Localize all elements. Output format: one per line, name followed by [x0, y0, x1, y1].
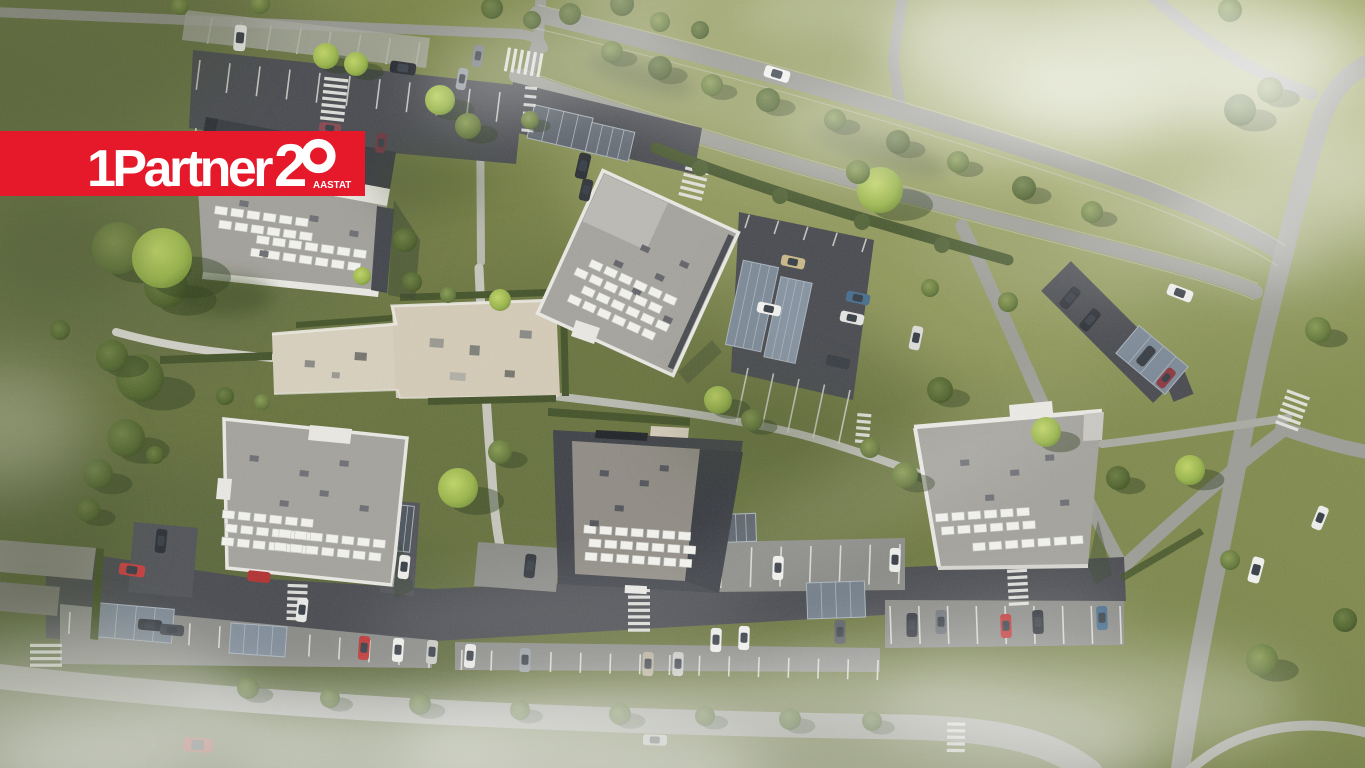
- svg-text:AASTAT: AASTAT: [313, 180, 351, 191]
- svg-text:2: 2: [274, 132, 307, 199]
- svg-text:1Partner: 1Partner: [87, 140, 273, 198]
